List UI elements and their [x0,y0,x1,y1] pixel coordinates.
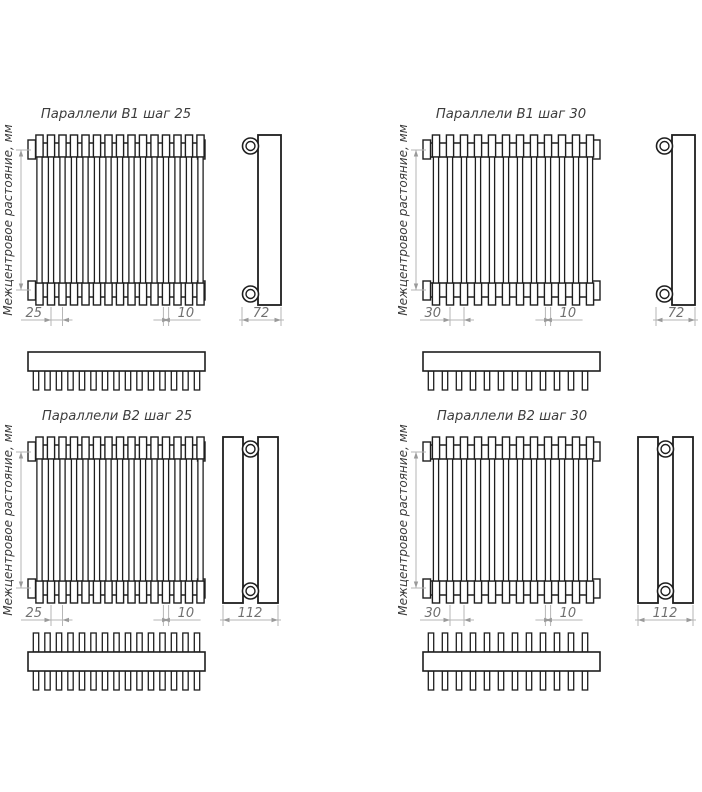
quadrant-title: Параллели В1 шаг 30 [436,107,586,122]
tube-head [446,135,453,157]
tube-head [174,581,181,603]
tube-section [148,371,153,390]
tube-section [498,671,503,690]
tube-head [139,437,146,459]
tube-section [56,371,61,390]
tube-section [56,671,61,690]
tube [573,459,578,581]
side-profile [672,135,695,305]
tube-head [47,437,54,459]
axis-label: Межцентровое растояние, мм [1,124,15,315]
pitch-dimension: 30 [420,605,474,626]
tube-section [428,633,433,652]
tube-head [530,581,537,603]
tube-head [530,437,537,459]
tube-section [194,633,199,652]
tube-head [139,581,146,603]
tube-head [544,437,551,459]
tube-section [45,671,50,690]
tube-head [116,135,123,157]
tube-head [151,437,158,459]
dimension-arrow [444,618,451,622]
tube-head [116,581,123,603]
tube-head [116,283,123,305]
depth-dimension-value: 72 [253,306,270,321]
tube-width-dimension: 10 [535,605,582,626]
tube [106,157,111,283]
tube-section [114,671,119,690]
tube-width-dimension-value: 10 [178,306,195,321]
connection-inner [246,142,255,151]
tube-head [516,437,523,459]
tube-section [568,371,573,390]
tube-head [488,283,495,305]
tube-head [502,135,509,157]
tube-section [33,671,38,690]
tube-section [540,671,545,690]
tube-section [68,671,73,690]
tube-head [93,581,100,603]
tube-section [79,671,84,690]
tube-section [582,633,587,652]
tube-head [185,283,192,305]
tube-head [151,581,158,603]
connection-inner [246,587,255,596]
tube-head [151,283,158,305]
tube [83,157,88,283]
tube [545,459,550,581]
tube [447,459,452,581]
tube-head [460,581,467,603]
tube-section [498,633,503,652]
front-view [28,437,205,603]
connection-inner [246,445,255,454]
side-view [243,135,282,305]
dimension-arrow [45,618,52,622]
axis-label: Межцентровое растояние, мм [1,424,15,615]
tube-section [171,671,176,690]
dimension-arrow [638,618,645,622]
collector-section [423,352,600,371]
side-profile [223,437,243,603]
dimension-arrow [162,618,169,622]
tube-section [470,633,475,652]
depth-dimension: 72 [653,306,698,326]
quadrant-title: Параллели В2 шаг 25 [42,409,192,424]
tube-head [82,135,89,157]
dimension-arrow [414,452,418,459]
tube-head [460,437,467,459]
pitch-dimension: 30 [420,306,474,326]
tube [186,157,191,283]
tube-head [544,581,551,603]
connection-inner [661,587,670,596]
tube [140,157,145,283]
tube-section [512,371,517,390]
tube [71,459,76,581]
axis-label: Межцентровое растояние, мм [396,424,410,615]
pitch-dimension-value: 25 [25,606,42,621]
tube-head [558,581,565,603]
tube [117,459,122,581]
tube [175,157,180,283]
tube-head [139,135,146,157]
tube-head [516,283,523,305]
center-distance-dimension: Межцентровое растояние, мм [396,124,426,315]
depth-dimension-value: 72 [668,306,685,321]
dimension-arrow [19,150,23,157]
collector-section [28,352,205,371]
tube [433,459,438,581]
front-view [28,135,205,305]
tube [531,459,536,581]
tube-section [91,671,96,690]
tube-head [446,437,453,459]
tube-section [526,671,531,690]
tube [531,157,536,283]
tube-section [554,633,559,652]
tube [573,157,578,283]
tube-head [530,283,537,305]
tube-section [137,371,142,390]
tube-section [114,371,119,390]
tube-head [174,135,181,157]
pitch-dimension-value: 30 [424,306,441,321]
tube-head [516,135,523,157]
dimension-arrow [45,318,52,322]
quadrant-b2-step-30: Параллели В2 шаг 30Межцентровое растояни… [396,409,696,690]
dimension-arrow [544,318,551,322]
dimension-arrow [687,618,694,622]
tube-section [484,633,489,652]
dimension-arrow [242,318,249,322]
tube-section [56,633,61,652]
tube-head [502,581,509,603]
tube-section [102,371,107,390]
tube-head [432,437,439,459]
tube-head [36,581,43,603]
tube-width-dimension-value: 10 [560,606,577,621]
tube-head [502,437,509,459]
tube-section [183,633,188,652]
dimension-arrow [656,318,663,322]
tube-head [105,581,112,603]
tube-section [484,671,489,690]
tube-section [102,671,107,690]
tube-section [102,633,107,652]
dimension-arrow [414,284,418,291]
depth-dimension-value: 112 [238,606,263,621]
tube [94,459,99,581]
tube-head [70,283,77,305]
tube [94,157,99,283]
tube-section [125,371,130,390]
tube-head [432,283,439,305]
tube-head [474,581,481,603]
tube-head [586,581,593,603]
dimension-arrow [63,318,70,322]
tube-section [171,633,176,652]
tube-head [47,283,54,305]
tube-head [59,283,66,305]
dimension-arrow [544,618,551,622]
tube-section [68,371,73,390]
tube [545,157,550,283]
dimension-arrow [162,318,169,322]
collector-section [423,652,600,671]
tube-head [128,581,135,603]
side-view [638,437,693,603]
tube [60,459,65,581]
tube [559,459,564,581]
tube-section [470,371,475,390]
tube-section [125,633,130,652]
pitch-dimension: 25 [21,605,73,626]
tube-head [128,437,135,459]
tube-section [160,633,165,652]
connection-inner [661,445,670,454]
pitch-dimension-value: 30 [424,606,441,621]
dimension-arrow [464,618,471,622]
side-view [223,437,278,603]
tube-section [568,671,573,690]
tube [198,459,203,581]
tube-section [554,371,559,390]
tube-head [116,437,123,459]
tube [48,157,53,283]
tube [71,157,76,283]
side-view [657,135,696,305]
tube-head [105,283,112,305]
tube-head [446,283,453,305]
tube-section [540,371,545,390]
tube-head [151,135,158,157]
tube-section [194,371,199,390]
tube-head [82,283,89,305]
tube [175,459,180,581]
tube-head [47,581,54,603]
dimension-arrow [223,618,230,622]
tube-section [582,371,587,390]
dimension-arrow [414,582,418,589]
dimension-arrow [414,150,418,157]
tube [517,157,522,283]
tube-width-dimension-value: 10 [560,306,577,321]
tube-section [442,671,447,690]
collector-section [28,652,205,671]
tube [163,157,168,283]
tube-head [128,135,135,157]
tube-section [456,633,461,652]
tube-head [558,437,565,459]
tube [129,459,134,581]
tube [559,157,564,283]
dimension-arrow [19,452,23,459]
pitch-dimension-value: 25 [25,306,42,321]
tube-section [79,371,84,390]
tube-head [93,437,100,459]
tube-head [185,135,192,157]
tube [517,459,522,581]
tube-head [488,581,495,603]
axis-label: Межцентровое растояние, мм [396,124,410,315]
tube [152,157,157,283]
tube-section [91,371,96,390]
tube-head [197,283,204,305]
tube-head [93,283,100,305]
tube-section [568,633,573,652]
tube [152,459,157,581]
side-profile [673,437,693,603]
tube-head [70,437,77,459]
depth-dimension: 72 [239,306,284,326]
tube [117,157,122,283]
center-distance-dimension: Межцентровое растояние, мм [396,424,426,615]
connection-inner [246,290,255,299]
tube-head [488,437,495,459]
side-profile [258,437,278,603]
tube-section [79,633,84,652]
tube [60,157,65,283]
side-profile [638,437,658,603]
front-view [423,437,600,603]
tube [503,157,508,283]
front-view [423,135,600,305]
center-distance-dimension: Межцентровое растояние, мм [1,424,31,615]
tube [489,459,494,581]
tube-head [544,283,551,305]
tube-section [526,371,531,390]
tube-section [194,671,199,690]
tube-head [128,283,135,305]
dimension-arrow [444,318,451,322]
tube-section [91,633,96,652]
connection-inner [660,290,669,299]
tube [447,157,452,283]
tube [37,157,42,283]
dimension-arrow [63,618,70,622]
dimension-arrow [272,618,279,622]
tube-section [125,671,130,690]
tube-head [446,581,453,603]
tube-section [160,371,165,390]
tube-head [185,581,192,603]
tube-section [484,371,489,390]
dimension-arrow [464,318,471,322]
tube-width-dimension-value: 10 [178,606,195,621]
tube-head [59,581,66,603]
drawing-canvas: Параллели В1 шаг 25Межцентровое растояни… [0,0,702,792]
tube-head [162,283,169,305]
tube-head [544,135,551,157]
top-view [28,352,205,390]
tube-section [137,633,142,652]
tube-head [432,135,439,157]
tube-head [572,437,579,459]
tube-section [526,633,531,652]
tube-section [456,671,461,690]
tube-head [162,135,169,157]
tube-head [558,135,565,157]
tube-section [183,671,188,690]
tube-head [59,437,66,459]
tube-section [470,671,475,690]
tube-head [197,581,204,603]
tube [461,157,466,283]
tube-section [183,371,188,390]
side-profile [258,135,281,305]
tube-head [586,135,593,157]
tube-section [512,671,517,690]
tube-width-dimension: 10 [153,605,200,626]
tube-section [582,671,587,690]
radiator-technical-diagram: Параллели В1 шаг 25Межцентровое растояни… [0,0,702,792]
tube [587,459,592,581]
tube [198,157,203,283]
tube [106,459,111,581]
tube [489,157,494,283]
dimension-arrow [19,284,23,291]
tube-section [148,671,153,690]
tube-head [105,437,112,459]
tube [461,459,466,581]
tube-head [36,283,43,305]
tube-width-dimension: 10 [535,306,582,326]
center-distance-dimension: Межцентровое растояние, мм [1,124,31,315]
dimension-arrow [275,318,282,322]
tube-head [105,135,112,157]
top-view [28,633,205,690]
quadrant-title: Параллели В2 шаг 30 [437,409,587,424]
tube-head [474,135,481,157]
tube [587,157,592,283]
tube-head [197,135,204,157]
tube-head [502,283,509,305]
tube-head [474,283,481,305]
tube-head [82,581,89,603]
tube-section [428,371,433,390]
tube-head [460,283,467,305]
tube-head [162,437,169,459]
top-view [423,633,600,690]
tube-head [36,135,43,157]
tube-head [70,135,77,157]
tube-head [460,135,467,157]
tube-head [82,437,89,459]
tube-head [174,437,181,459]
tube-section [442,633,447,652]
tube-head [516,581,523,603]
tube-head [174,283,181,305]
tube-head [572,283,579,305]
tube-head [572,135,579,157]
tube [475,157,480,283]
tube [48,459,53,581]
tube-head [474,437,481,459]
tube [129,157,134,283]
tube-section [456,371,461,390]
tube [186,459,191,581]
top-view [423,352,600,390]
tube-section [554,671,559,690]
tube-head [59,135,66,157]
tube-section [540,633,545,652]
tube-head [197,437,204,459]
tube [140,459,145,581]
tube-head [572,581,579,603]
tube-head [47,135,54,157]
tube-head [139,283,146,305]
